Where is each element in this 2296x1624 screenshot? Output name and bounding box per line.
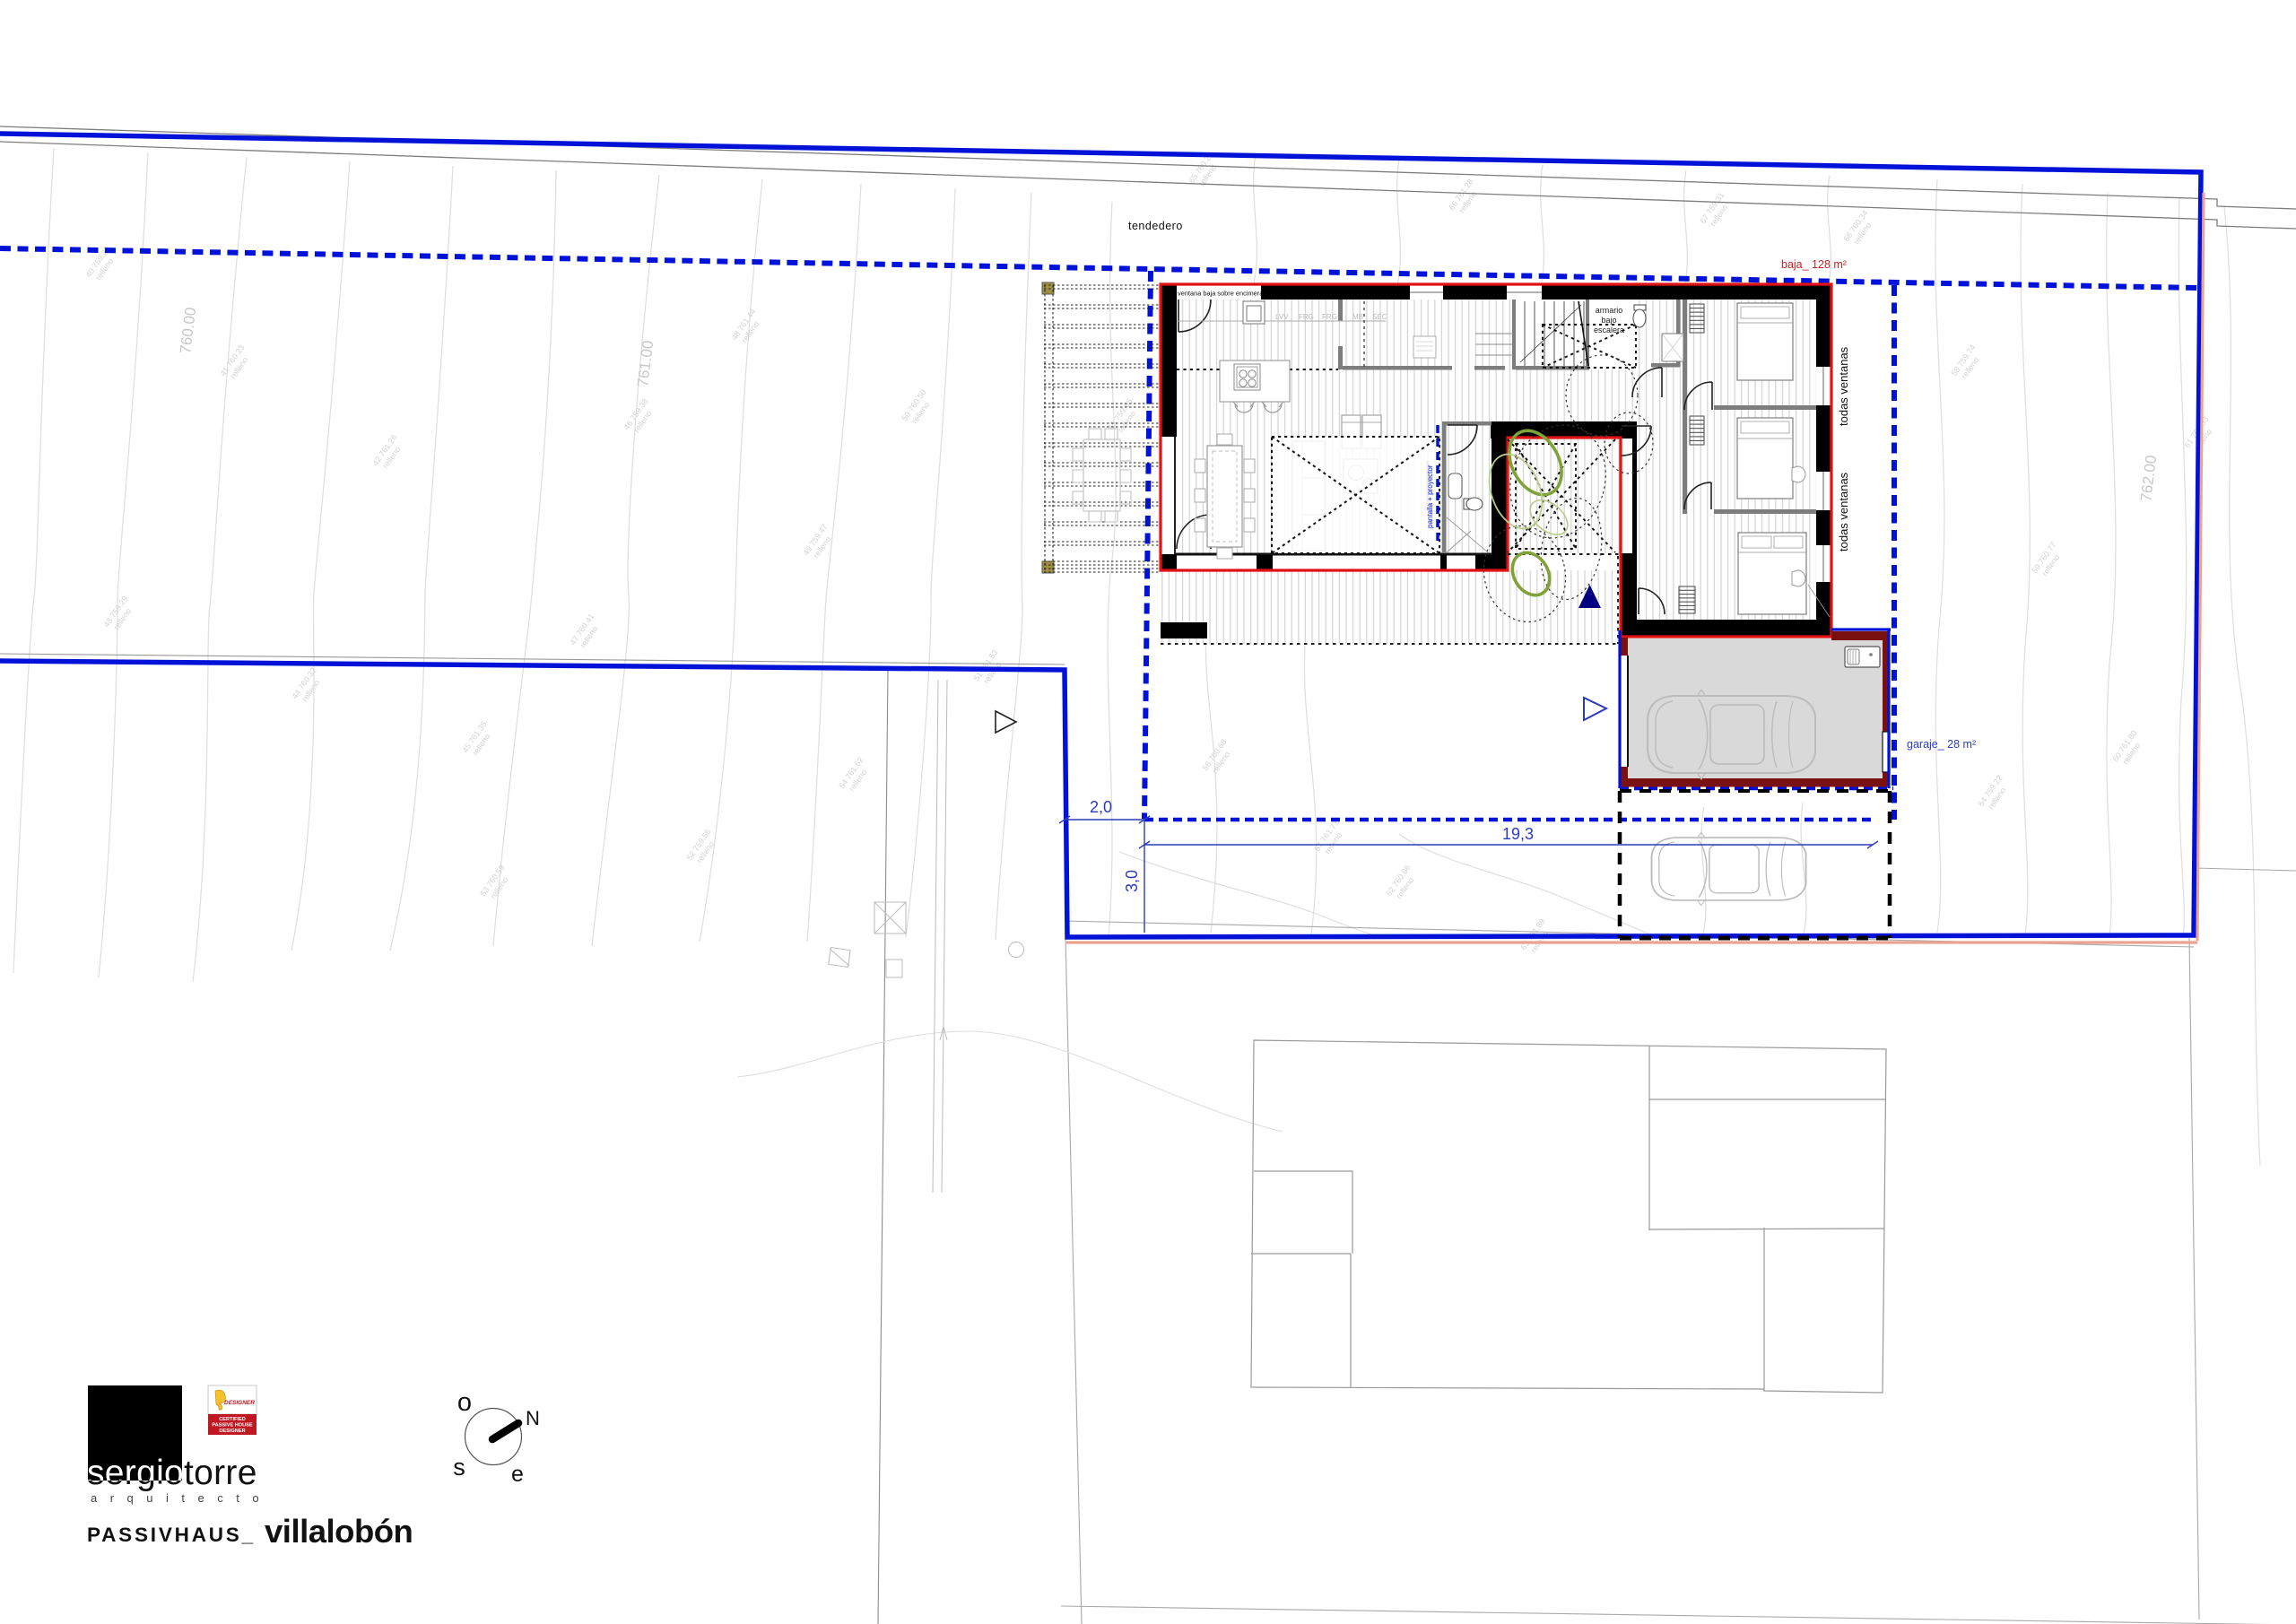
- svg-text:e: e: [511, 1462, 524, 1487]
- svg-text:FRG: FRG: [1322, 313, 1337, 321]
- svg-text:armario: armario: [1596, 306, 1623, 315]
- svg-text:FRG: FRG: [1299, 313, 1314, 321]
- svg-text:N: N: [526, 1407, 540, 1429]
- svg-text:garaje_ 28 m²: garaje_ 28 m²: [1907, 738, 1976, 751]
- svg-text:DESIGNER: DESIGNER: [219, 1429, 245, 1434]
- svg-text:3,0: 3,0: [1123, 870, 1141, 892]
- svg-text:todas ventanas: todas ventanas: [1837, 346, 1850, 426]
- svg-text:s: s: [453, 1454, 465, 1481]
- svg-text:o: o: [457, 1388, 472, 1417]
- svg-text:MB: MB: [1352, 313, 1363, 321]
- svg-text:baja_ 128 m²: baja_ 128 m²: [1781, 258, 1847, 271]
- svg-text:bajo: bajo: [1601, 316, 1616, 325]
- svg-text:villalobón: villalobón: [265, 1513, 413, 1550]
- svg-text:CERTIFIED: CERTIFIED: [219, 1417, 246, 1422]
- svg-text:arquitecto: arquitecto: [91, 1491, 272, 1505]
- svg-text:pantalla + proyector: pantalla + proyector: [1426, 465, 1434, 528]
- svg-text:todas ventanas: todas ventanas: [1837, 472, 1850, 551]
- svg-text:tendedero: tendedero: [1128, 220, 1183, 232]
- svg-text:2,0: 2,0: [1090, 798, 1112, 816]
- svg-text:PASSIVE HOUSE: PASSIVE HOUSE: [212, 1423, 253, 1429]
- svg-text:DESIGNER: DESIGNER: [224, 1400, 255, 1406]
- svg-text:LVV: LVV: [1275, 313, 1289, 321]
- svg-text:ventana baja sobre encimera: ventana baja sobre encimera: [1178, 290, 1264, 298]
- svg-text:escalera: escalera: [1594, 326, 1624, 334]
- svg-text:19,3: 19,3: [1502, 825, 1534, 843]
- svg-text:SEC: SEC: [1372, 313, 1387, 321]
- svg-text:PASSIVHAUS_: PASSIVHAUS_: [87, 1524, 256, 1546]
